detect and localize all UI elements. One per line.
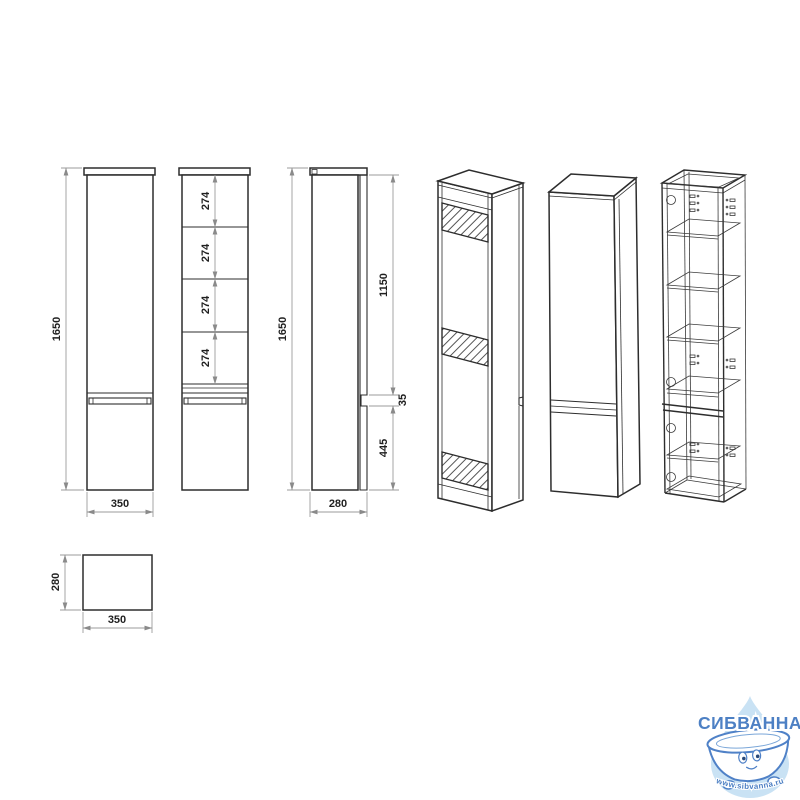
- side-face: [614, 178, 640, 497]
- carcass-outline: [312, 175, 358, 490]
- dim-shelf-label: 274: [200, 191, 212, 210]
- front-internal-view: 274 274 274 274: [179, 168, 250, 490]
- dim-front-width-label: 350: [111, 498, 129, 510]
- top-panel: [84, 168, 155, 175]
- dim-plan-width-label: 350: [108, 614, 126, 626]
- iso-view-front: [549, 174, 640, 497]
- dim-side-depth-label: 280: [329, 498, 347, 510]
- top-panel: [179, 168, 250, 175]
- dim-shelf-label: 274: [200, 348, 212, 367]
- top-panel: [310, 168, 367, 175]
- cabinet-outline: [87, 175, 153, 490]
- dim-handle-gap-label: 35: [397, 394, 409, 406]
- dim-shelf-label: 274: [200, 243, 212, 262]
- dim-front-height-label: 1650: [51, 317, 63, 341]
- dim-upper-door-label: 1150: [378, 273, 390, 297]
- dim-lower-door-label: 445: [378, 439, 390, 457]
- plan-outline: [83, 555, 152, 610]
- brand-name: СИБВАННА: [698, 713, 800, 733]
- iso-view-mirror: [438, 170, 523, 511]
- front-face: [549, 192, 618, 497]
- side-face: [492, 183, 523, 511]
- dim-plan-depth-label: 280: [50, 573, 62, 591]
- dim-side-height-label: 1650: [277, 317, 289, 341]
- dim-shelf-label: 274: [200, 295, 212, 314]
- cabinet-drawing: 1650 350 274 274 274 274: [0, 0, 800, 800]
- technical-drawing-page: 1650 350 274 274 274 274: [0, 0, 800, 800]
